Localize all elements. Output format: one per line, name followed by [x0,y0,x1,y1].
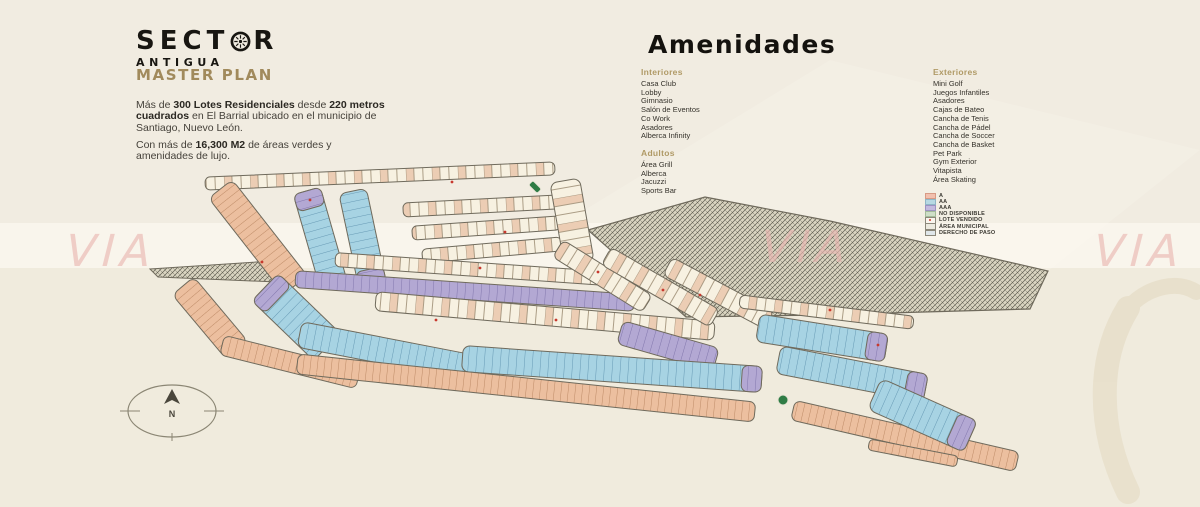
agave-watermark [1105,286,1196,492]
amenity-item: Alberca Infinity [641,132,700,141]
legend-swatch [925,230,936,236]
logo-sector: SECT R [136,28,278,54]
logo-text-end: R [253,28,278,54]
legend-label: LOTE VENDIDO [939,217,983,223]
entrance-marker-bottom [778,395,788,405]
amenity-item: Sports Bar [641,187,700,196]
amenities-column-left: Interiores Casa ClubLobbyGimnasioSalón d… [641,67,700,203]
amenity-item: Área Skating [933,176,995,185]
svg-text:VIA: VIA [754,222,858,273]
compass-icon: N [120,385,224,441]
compass-o-icon [230,31,251,52]
sold-dot-icon [929,219,931,221]
amenities-group-exteriores: Exteriores Mini GolfJuegos InfantilesAsa… [933,67,995,184]
svg-text:VIA: VIA [59,226,163,277]
amenities-group-interiores: Interiores Casa ClubLobbyGimnasioSalón d… [641,67,700,141]
map-legend: AAAAAANO DISPONIBLELOTE VENDIDOÁREA MUNI… [925,193,995,236]
intro-paragraph-1: Más de 300 Lotes Residenciales desde 220… [136,100,388,135]
legend-label: AA [939,199,947,205]
svg-text:VIA: VIA [1087,226,1191,277]
legend-row: DERECHO DE PASO [925,230,995,236]
legend-label: NO DISPONIBLE [939,211,985,217]
amenities-title: Amenidades [648,30,836,59]
master-plan-title: MASTER PLAN [136,66,273,84]
legend-label: A [939,193,943,199]
master-plan-poster: VIA VIA VIA N SECT R [0,0,1200,507]
group-heading: Exteriores [933,67,995,77]
amenities-group-adultos: Adultos Área GrillAlbercaJacuzziSports B… [641,148,700,196]
intro-paragraph-2: Con más de 16,300 M2 de áreas verdes y a… [136,140,388,163]
legend-label: DERECHO DE PASO [939,230,995,236]
amenities-column-right: Exteriores Mini GolfJuegos InfantilesAsa… [933,67,995,191]
legend-label: ÁREA MUNICIPAL [939,224,989,230]
legend-label: AAA [939,205,952,211]
logo-text-start: SECT [136,28,229,54]
group-heading: Interiores [641,67,700,77]
group-heading: Adultos [641,148,700,158]
svg-text:N: N [169,409,176,419]
brand-block: SECT R ANTIGUA [136,28,278,69]
